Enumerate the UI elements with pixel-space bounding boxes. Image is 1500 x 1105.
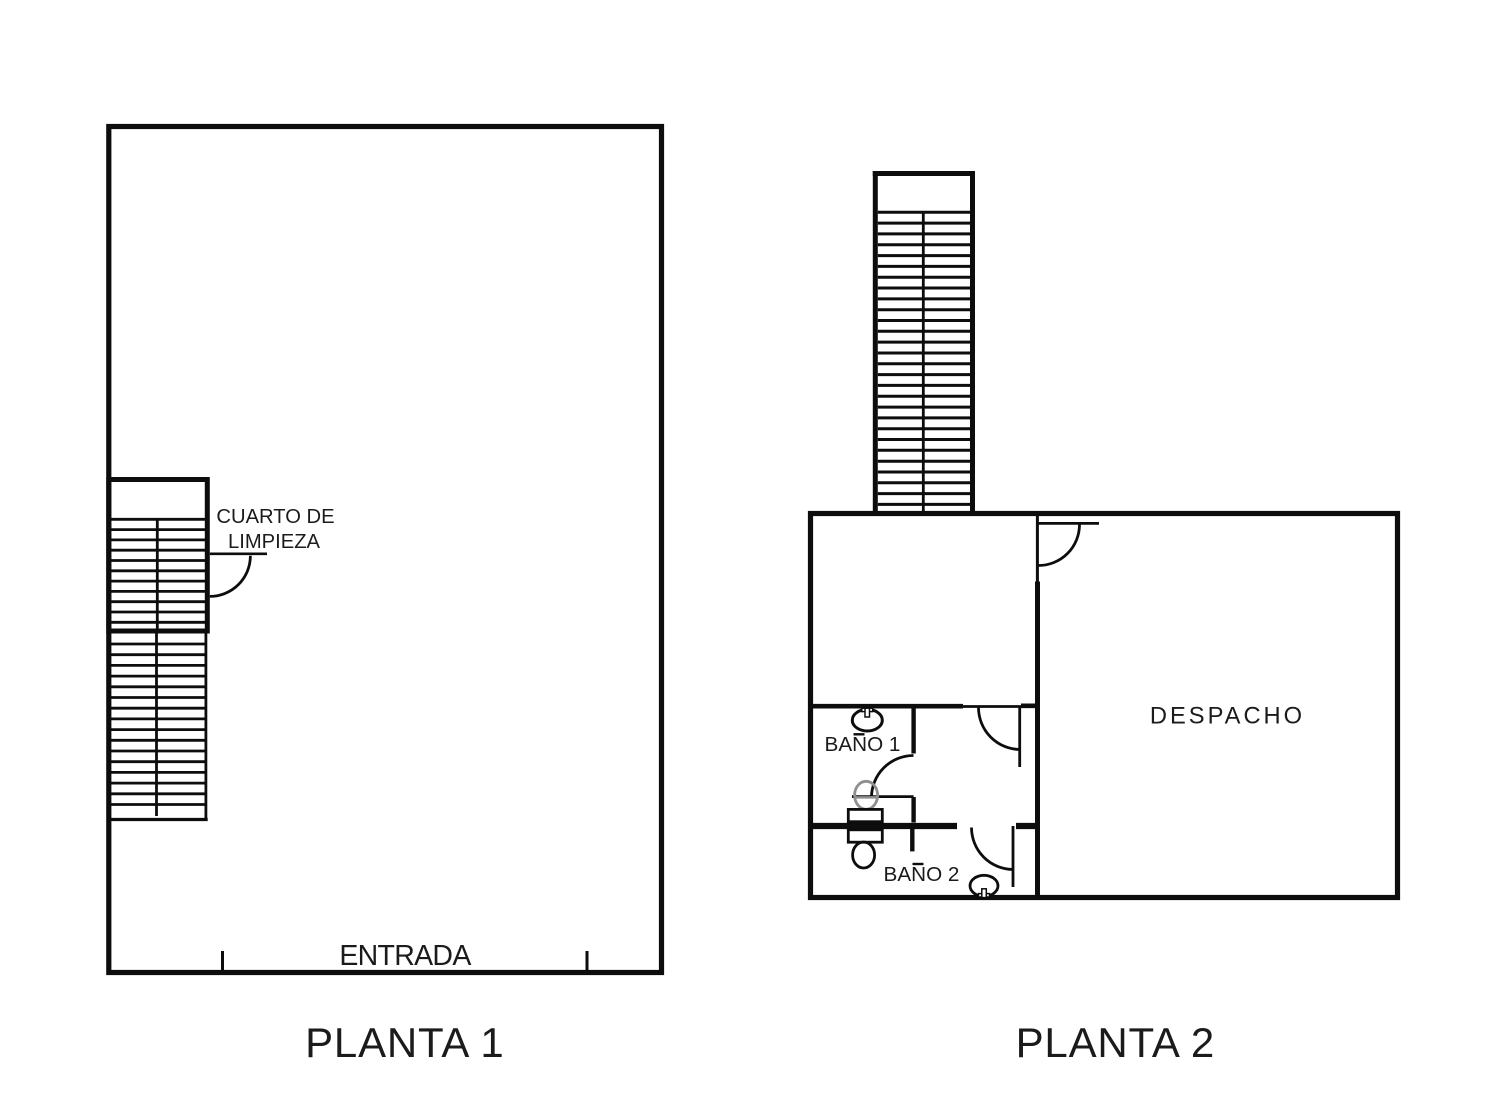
svg-text:DESPACHO: DESPACHO (1150, 704, 1305, 730)
svg-text:BANO 2: BANO 2 (884, 863, 960, 886)
svg-text:BANO 1: BANO 1 (825, 733, 901, 756)
svg-text:CUARTO DE: CUARTO DE (216, 506, 334, 528)
svg-text:PLANTA 1: PLANTA 1 (305, 1019, 504, 1066)
svg-text:LIMPIEZA: LIMPIEZA (228, 531, 321, 553)
svg-text:PLANTA 2: PLANTA 2 (1016, 1019, 1215, 1066)
svg-text:ENTRADA: ENTRADA (339, 940, 471, 972)
